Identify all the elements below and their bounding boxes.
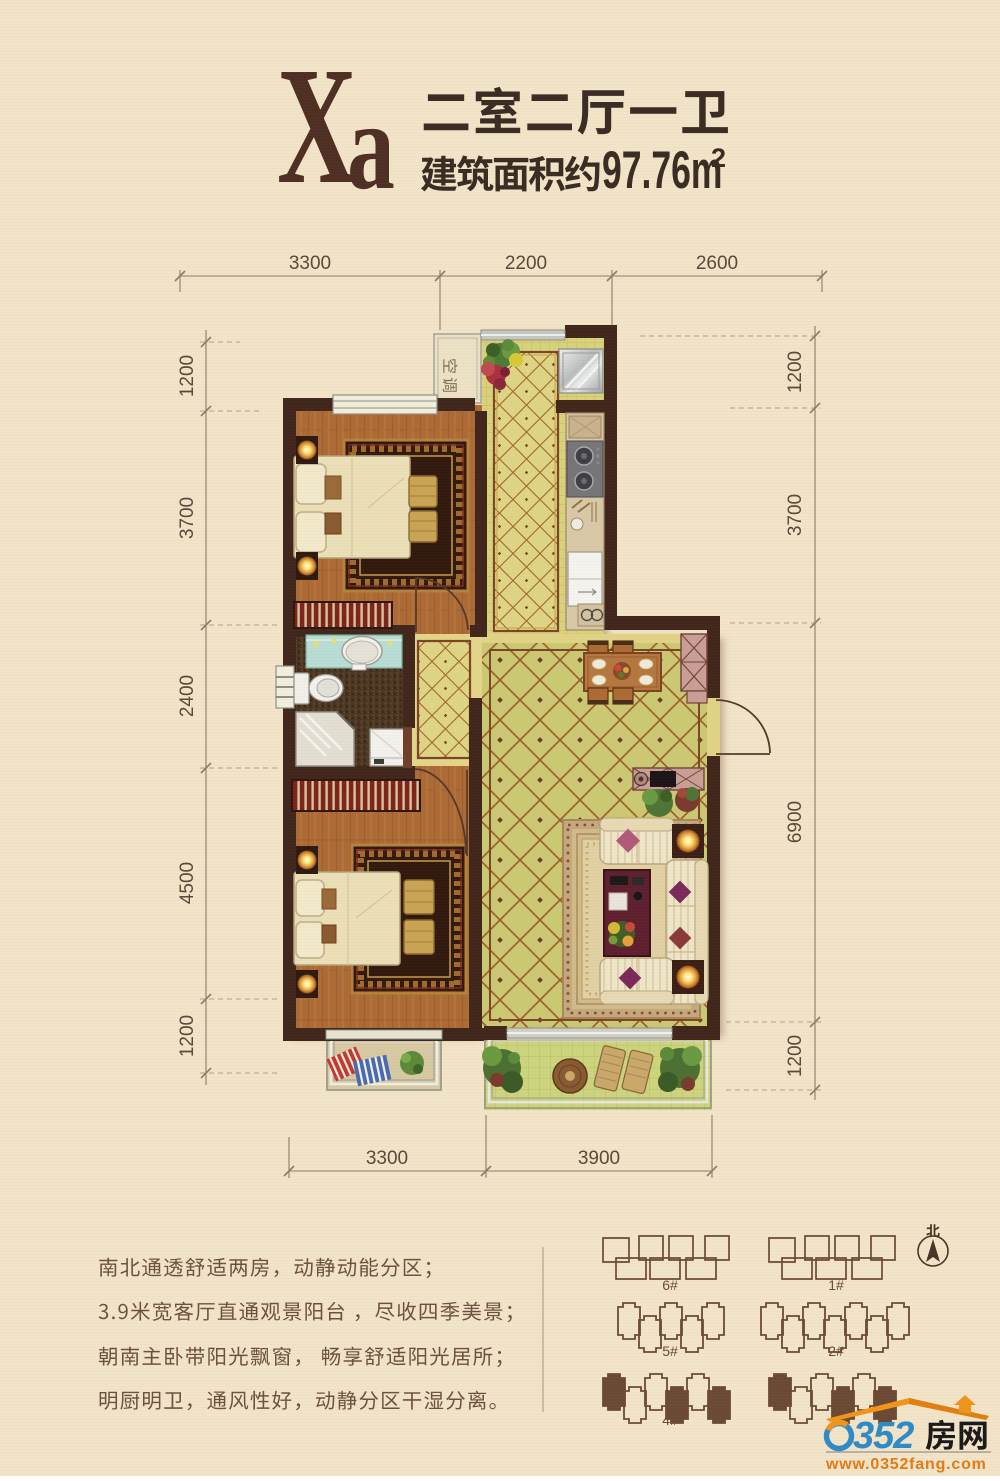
svg-text:3700: 3700 — [785, 494, 806, 536]
svg-text:5#: 5# — [662, 1343, 678, 1359]
svg-text:6#: 6# — [662, 1277, 678, 1293]
svg-text:6900: 6900 — [785, 801, 806, 843]
svg-text:2200: 2200 — [505, 253, 547, 274]
svg-text:3300: 3300 — [289, 253, 331, 274]
svg-text:4#: 4# — [662, 1412, 678, 1428]
svg-text:1200: 1200 — [785, 1035, 806, 1077]
svg-text:1200: 1200 — [177, 1015, 198, 1057]
svg-text:www.0352fang.com: www.0352fang.com — [825, 1456, 987, 1473]
svg-text:1#: 1# — [828, 1277, 844, 1293]
svg-text:352: 352 — [853, 1415, 914, 1457]
svg-text:97.76m: 97.76m — [602, 140, 722, 200]
svg-text:2400: 2400 — [177, 675, 198, 717]
svg-text:1200: 1200 — [785, 351, 806, 393]
svg-text:3300: 3300 — [366, 1148, 408, 1169]
svg-text:1200: 1200 — [177, 355, 198, 397]
svg-text:3900: 3900 — [578, 1148, 620, 1169]
svg-text:2600: 2600 — [696, 253, 738, 274]
svg-text:2#: 2# — [828, 1343, 844, 1359]
svg-text:2: 2 — [711, 143, 726, 173]
svg-text:3700: 3700 — [177, 497, 198, 539]
svg-text:4500: 4500 — [177, 862, 198, 904]
